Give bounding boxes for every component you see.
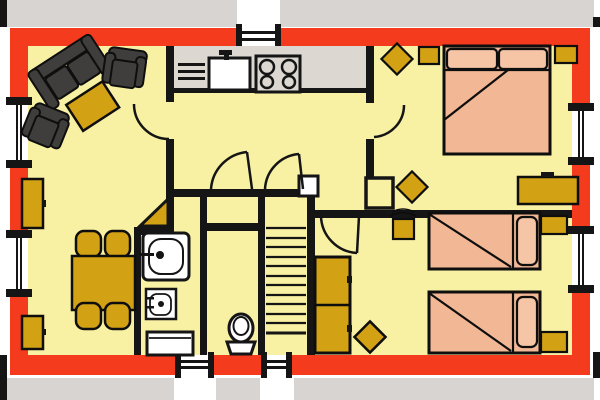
sideboard-lower-handle <box>42 329 46 335</box>
window-right-lower-glazing-1 <box>578 234 580 285</box>
window-bottom-1-glazing-1 <box>181 360 208 363</box>
bedroom1-dresser-handle <box>541 172 554 177</box>
window-top-jamb-left <box>236 24 242 46</box>
window-right-lower-glazing-2 <box>582 234 584 285</box>
window-bottom-1-glazing-2 <box>181 366 208 369</box>
sideboard-upper <box>22 179 43 228</box>
bath-sink-faucet-2 <box>147 306 154 309</box>
window-left-lower-cap-bottom <box>6 289 32 297</box>
kitchen-sink <box>209 58 250 90</box>
wall-tick-bottom-right <box>593 352 600 378</box>
window-left-upper-glazing-1 <box>16 105 18 160</box>
outside-strip-bottom-mid <box>216 378 260 400</box>
window-top-jamb-right <box>275 24 281 46</box>
window-bottom-1-jamb-right <box>208 352 214 378</box>
window-top-glazing-1 <box>242 31 275 34</box>
hall-wardrobe-handle-1 <box>347 276 352 283</box>
kitchen-rack-line-2 <box>178 70 205 73</box>
floor-plan-drawing <box>0 0 600 400</box>
window-right-lower-white <box>572 234 590 285</box>
outside-strip-top-left <box>6 0 237 27</box>
window-right-upper-cap-top <box>568 103 594 111</box>
washing-machine <box>147 332 193 355</box>
window-right-lower-cap-top <box>568 226 594 234</box>
window-right-upper-glazing-2 <box>582 111 584 157</box>
kitchen-faucet-bar <box>219 50 232 55</box>
window-left-lower-glazing-2 <box>20 238 22 289</box>
wall-tick-top-left <box>0 0 7 27</box>
bedroom1-pillow-right <box>499 49 547 69</box>
bathtub-faucet <box>141 253 154 256</box>
wall-wc-top <box>200 223 265 231</box>
toilet-base <box>227 342 255 354</box>
wall-kitchen-bedroom1-lower <box>366 139 374 180</box>
window-top-glazing-2 <box>242 38 275 41</box>
dining-chair-bottom-right <box>105 303 130 329</box>
bedroom1-nightstand <box>555 46 577 63</box>
window-right-upper-glazing-1 <box>578 111 580 157</box>
bedroom1-stool-square <box>419 47 439 64</box>
outside-strip-bottom-left <box>6 378 174 400</box>
window-left-upper-cap-bottom <box>6 160 32 168</box>
bedroom1-dresser <box>518 177 578 204</box>
kitchen-faucet-stem <box>224 55 229 60</box>
bathtub-drain <box>156 251 164 259</box>
window-left-lower-white <box>10 238 28 289</box>
window-left-lower-glazing-1 <box>16 238 18 289</box>
bedroom2-nightstand-bottom <box>541 332 567 352</box>
armchair-top-seat <box>109 59 137 88</box>
stairs-rail-left <box>258 190 265 355</box>
wall-living-kitchen-upper <box>166 46 174 102</box>
wall-bath-right <box>200 197 207 355</box>
bedroom2-bed-bottom-pillow <box>517 297 537 347</box>
floor-plan <box>0 0 600 400</box>
wall-kitchen-bedroom1-upper <box>366 46 374 103</box>
window-bottom-2-glazing-2 <box>267 366 286 369</box>
bedroom2-nightstand-top <box>541 216 567 234</box>
window-bottom-2-jamb-left <box>261 352 267 378</box>
dining-chair-bottom-left <box>76 303 101 329</box>
closet-box <box>366 178 393 208</box>
sideboard-upper-handle <box>42 200 46 207</box>
dining-table <box>72 256 135 310</box>
kitchen-rack-line-3 <box>178 77 205 80</box>
bedroom2-bed-top-pillow <box>517 217 537 265</box>
window-left-upper-cap-top <box>6 97 32 105</box>
window-left-lower-cap-top <box>6 230 32 238</box>
sideboard-lower <box>22 316 43 349</box>
window-bottom-2-glazing-1 <box>267 360 286 363</box>
outside-strip-bottom-right <box>294 378 594 400</box>
window-right-lower-cap-bottom <box>568 285 594 293</box>
wall-tick-bottom-left <box>0 355 7 400</box>
window-right-upper-cap-bottom <box>568 157 594 165</box>
hall-wardrobe-handle-2 <box>347 325 352 332</box>
wall-tick-top-right <box>593 17 600 27</box>
toilet-bowl <box>229 314 253 342</box>
outside-strip-top-right <box>280 0 594 27</box>
window-bottom-2-jamb-right <box>286 352 292 378</box>
kitchen-rack-line-1 <box>178 63 205 66</box>
bedroom2-chair <box>393 219 414 239</box>
dining-chair-top-right <box>105 231 130 257</box>
bath-sink-drain <box>158 301 164 307</box>
window-right-upper-white <box>572 111 590 157</box>
dining-chair-top-left <box>76 231 101 257</box>
bath-sink-faucet-1 <box>147 297 154 300</box>
bedroom1-pillow-left <box>447 49 497 69</box>
